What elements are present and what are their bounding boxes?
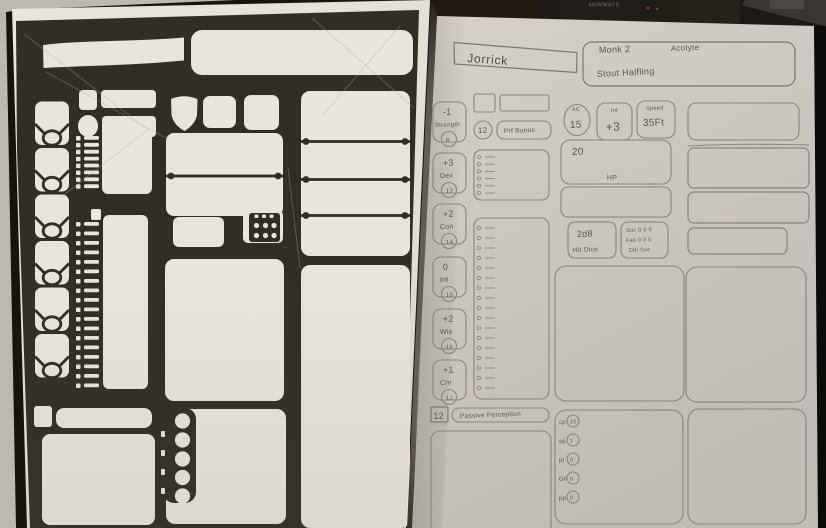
svg-text:cp: cp [559,420,567,426]
svg-text:+2: +2 [443,209,454,219]
svg-text:16: 16 [446,345,454,351]
svg-text:0: 0 [443,262,449,272]
svg-text:pp: pp [559,496,567,502]
svg-text:Wis: Wis [440,329,453,336]
svg-text:Dex: Dex [440,173,454,180]
svg-text:+3: +3 [443,158,454,168]
svg-text:12: 12 [433,411,444,421]
svg-text:17: 17 [446,189,454,195]
svg-text:Monk 2: Monk 2 [599,44,631,55]
svg-text:-1: -1 [443,107,452,117]
svg-text:Dth Sve: Dth Sve [629,247,651,254]
svg-text:Chr: Chr [440,380,453,387]
svg-text:NORWAYS: NORWAYS [589,3,620,9]
svg-text:1: 1 [570,438,574,444]
svg-text:+2: +2 [443,314,454,324]
svg-text:+1: +1 [443,365,454,375]
svg-text:Suc 0 0 0: Suc 0 0 0 [626,227,652,234]
svg-text:12: 12 [446,396,454,402]
svg-text:Prf Bonus: Prf Bonus [504,127,536,135]
svg-text:10: 10 [570,419,577,425]
svg-text:15: 15 [570,120,582,131]
svg-text:+3: +3 [606,120,621,134]
svg-text:HP: HP [607,175,618,182]
svg-text:Speed: Speed [646,105,664,112]
svg-text:14: 14 [446,240,454,246]
svg-text:Strength: Strength [435,122,460,129]
svg-text:20: 20 [572,147,584,158]
svg-text:0: 0 [570,457,574,463]
svg-text:12: 12 [478,126,488,135]
svg-text:Fail 0 0 0: Fail 0 0 0 [626,237,652,244]
svg-text:Int: Int [611,108,618,114]
svg-text:2d8: 2d8 [577,228,593,239]
svg-text:Jorrick: Jorrick [467,51,509,68]
svg-text:0: 0 [570,495,574,501]
svg-text:Con: Con [440,224,454,231]
svg-text:pt: pt [559,458,565,464]
svg-text:0: 0 [570,476,574,482]
svg-text:Hit Dice: Hit Dice [573,246,598,254]
svg-text:35Ft: 35Ft [643,117,665,129]
svg-text:Int: Int [440,277,449,284]
svg-text:Acolyte: Acolyte [671,43,700,53]
svg-text:AC: AC [572,107,580,113]
svg-text:8: 8 [446,138,450,144]
svg-text:10: 10 [446,293,454,299]
svg-text:sp: sp [559,439,567,445]
